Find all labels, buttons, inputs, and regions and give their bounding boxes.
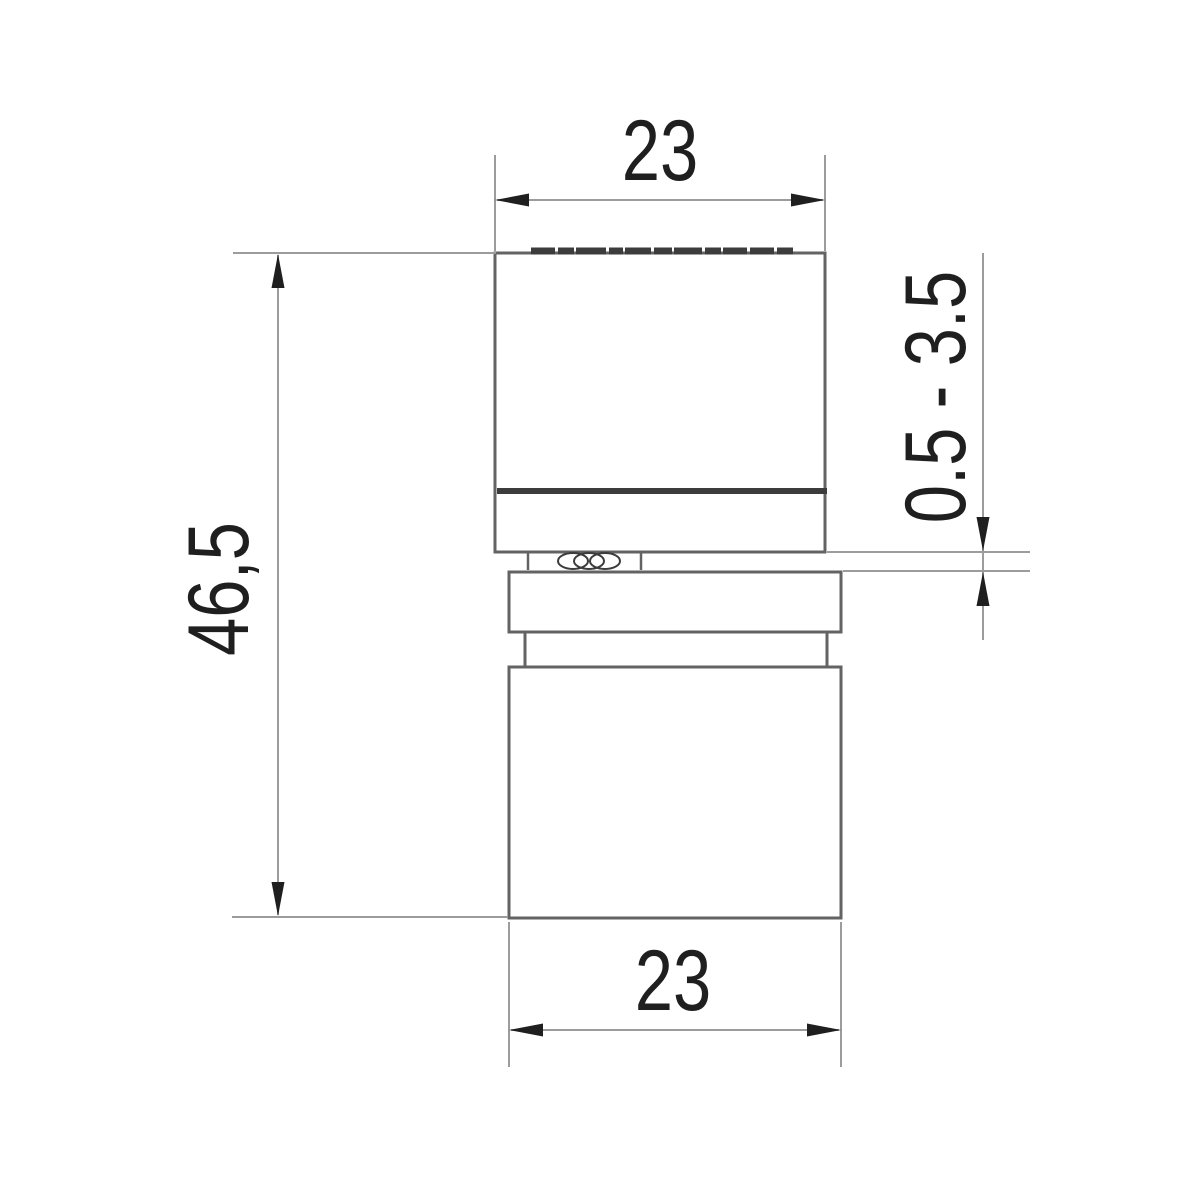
arrowhead-right — [807, 1024, 841, 1037]
dim-label-top-width: 23 — [622, 108, 699, 194]
arrowhead-down — [272, 882, 285, 916]
dim-label-bottom-width: 23 — [635, 938, 712, 1024]
dim-label-gap-range: 0.5 - 3.5 — [893, 271, 979, 523]
arrowhead-right — [791, 194, 825, 207]
arrowhead-left — [495, 194, 529, 207]
flange-outline — [509, 572, 841, 632]
drawing-canvas: 23 46,5 0.5 - 3.5 23 — [0, 0, 1200, 1200]
lower-cylinder-outline — [509, 667, 841, 918]
dim-label-overall-height: 46,5 — [176, 522, 262, 656]
arrowhead-left — [509, 1024, 543, 1037]
thread-coil — [558, 553, 620, 569]
arrowhead-up — [977, 572, 990, 606]
upper-cylinder-outline — [495, 253, 825, 552]
collar-outline — [525, 632, 827, 667]
arrowhead-up — [272, 254, 285, 288]
dim-overall-height — [232, 253, 508, 917]
